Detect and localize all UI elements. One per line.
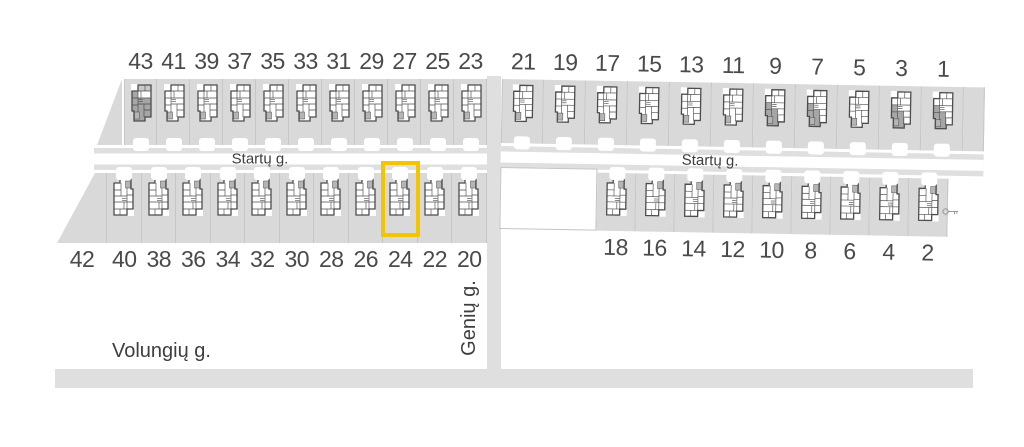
floor-plan-icon <box>146 178 172 216</box>
lot-number: 41 <box>161 48 186 75</box>
lot-number: 5 <box>853 54 866 81</box>
lot-number: 7 <box>811 53 824 80</box>
lot-number: 13 <box>679 51 704 78</box>
floor-plan-icon <box>392 84 418 122</box>
driveway-pad <box>724 140 740 153</box>
floor-plan-icon <box>318 178 344 216</box>
driveway-pad <box>882 172 898 185</box>
lot-25[interactable]: 25 <box>421 79 454 145</box>
lot-number: 17 <box>595 50 620 77</box>
floor-plan-icon <box>353 178 379 216</box>
lot-10[interactable]: 10 <box>752 175 792 234</box>
driveway-pad <box>166 138 182 151</box>
lot-number: 8 <box>804 237 817 264</box>
driveway-pad <box>199 138 215 151</box>
lot-number: 12 <box>720 236 745 263</box>
floor-plan-icon <box>759 181 786 219</box>
driveway-pad <box>804 170 820 183</box>
lot-8[interactable]: 8 <box>791 176 831 235</box>
lot-number: 11 <box>722 52 745 79</box>
driveway-pad <box>392 167 408 180</box>
lot-16[interactable]: 16 <box>635 173 675 232</box>
lot-18[interactable]: 18 <box>596 173 636 232</box>
lot-number: 29 <box>359 48 384 75</box>
street-name-label: Startų g. <box>682 152 739 170</box>
floor-plan-icon <box>551 85 578 123</box>
lot-15[interactable]: 15 <box>627 81 670 146</box>
street-geniu-label: Genių g. <box>457 280 481 356</box>
driveway-pad <box>609 167 625 180</box>
driveway-pad <box>331 138 347 151</box>
driveway-pad <box>185 167 201 180</box>
floor-plan-icon <box>456 178 482 216</box>
lot-29[interactable]: 29 <box>355 79 388 145</box>
lot-7[interactable]: 7 <box>795 84 838 149</box>
floor-plan-icon <box>509 84 536 122</box>
lot-number: 22 <box>422 246 447 273</box>
lot-number: 20 <box>457 246 482 273</box>
street-volungiu <box>55 369 973 388</box>
lot-11[interactable]: 11 <box>711 83 754 148</box>
floor-plan-icon <box>677 87 704 125</box>
lot-number: 27 <box>392 48 417 75</box>
lot-number: 15 <box>637 50 662 77</box>
floor-plan-icon <box>681 179 708 217</box>
lot-number: 21 <box>511 48 536 75</box>
floor-plan-icon <box>635 86 662 124</box>
lot-number: 2 <box>921 239 934 266</box>
lot-number: 4 <box>882 239 895 266</box>
lot-number: 28 <box>319 246 344 273</box>
block-right: 21191715131197531 Startų g. 181614121086… <box>499 79 985 272</box>
lot-number: 16 <box>642 234 667 261</box>
floor-plan-icon <box>887 91 914 129</box>
key-icon <box>942 203 959 221</box>
street-name-label: Startų g. <box>232 151 289 168</box>
floor-plan-icon <box>111 178 137 216</box>
floor-plan-icon <box>642 178 669 216</box>
lot-33[interactable]: 33 <box>289 79 322 145</box>
lot-number: 23 <box>458 48 483 75</box>
driveway-pad <box>765 170 781 183</box>
floor-plan-icon <box>249 178 275 216</box>
driveway-pad <box>232 138 248 151</box>
floor-plan-icon <box>161 84 187 122</box>
driveway-pad <box>766 141 782 154</box>
lot-22[interactable]: 22 <box>418 173 453 243</box>
floor-plan-icon <box>260 84 286 122</box>
lot-number: 33 <box>293 48 318 75</box>
lot-24[interactable]: 24 <box>383 173 418 243</box>
lot-31[interactable]: 31 <box>322 79 355 145</box>
floor-plan-icon <box>227 84 253 122</box>
lot-40[interactable]: 40 <box>107 173 142 243</box>
floor-plan-icon <box>876 183 903 221</box>
floor-plan-icon <box>422 178 448 216</box>
driveway-pad <box>892 143 908 156</box>
lot-17[interactable]: 17 <box>585 80 628 145</box>
lot-number: 36 <box>181 246 206 273</box>
driveway-pad <box>808 141 824 154</box>
floor-plan-icon <box>761 89 788 127</box>
driveway-pad <box>843 171 859 184</box>
lot-37[interactable]: 37 <box>223 79 256 145</box>
lot-number: 37 <box>227 48 252 75</box>
driveway-pad <box>514 136 530 149</box>
driveway-pad <box>298 138 314 151</box>
driveway-pad <box>265 138 281 151</box>
driveway-pad <box>463 138 479 151</box>
lot-21[interactable]: 21 <box>501 79 544 144</box>
driveway-pad <box>151 167 167 180</box>
driveway-pad <box>430 138 446 151</box>
driveway-pad <box>640 138 656 151</box>
driveway-pad <box>289 167 305 180</box>
lot-number: 42 <box>70 246 95 273</box>
lot-number: 10 <box>759 237 784 264</box>
lot-number: 32 <box>250 246 275 273</box>
floor-plan-icon <box>293 84 319 122</box>
driveway-pad <box>682 139 698 152</box>
driveway-pad <box>364 138 380 151</box>
lot-1[interactable]: 1 <box>921 86 964 151</box>
lot-30[interactable]: 30 <box>280 173 315 243</box>
block-edge-top-left <box>97 79 122 145</box>
floor-plan-icon <box>603 178 630 216</box>
floor-plan-icon <box>719 88 746 126</box>
driveway-pad <box>323 167 339 180</box>
floor-plan-icon <box>593 86 620 124</box>
block-bottom-right: 18161412108642 <box>499 171 948 237</box>
lot-20[interactable]: 20 <box>452 173 487 243</box>
floor-plan-icon <box>458 84 484 122</box>
lot-43[interactable]: 43 <box>124 79 157 145</box>
driveway-pad <box>921 172 937 185</box>
floor-plan-icon <box>284 178 310 216</box>
driveway-pad <box>461 167 477 180</box>
lot-5[interactable]: 5 <box>837 85 880 150</box>
floor-plan-icon <box>929 91 956 129</box>
floor-plan-icon <box>837 182 864 220</box>
block-top-left: 4341393735333129272523 <box>124 79 487 145</box>
driveway-pad <box>116 167 132 180</box>
floor-plan-icon <box>180 178 206 216</box>
lot-number: 34 <box>215 246 240 273</box>
lot-14[interactable]: 14 <box>674 174 714 233</box>
lot-4[interactable]: 4 <box>869 177 909 236</box>
driveway-pad <box>133 138 149 151</box>
lot-27[interactable]: 27 <box>388 79 421 145</box>
lot-number: 1 <box>937 56 950 83</box>
block-edge-top-right <box>963 87 985 151</box>
driveway-pad <box>220 167 236 180</box>
driveway-pad <box>358 167 374 180</box>
block-top-right: 21191715131197531 <box>501 79 985 151</box>
open-space-parcel <box>499 171 597 231</box>
floor-plan-icon <box>359 84 385 122</box>
lot-38[interactable]: 38 <box>142 173 177 243</box>
driveway-pad <box>726 169 742 182</box>
lot-number: 19 <box>553 49 578 76</box>
lot-number: 24 <box>388 246 413 273</box>
driveway-pad <box>687 168 703 181</box>
lot-42[interactable]: 42 <box>57 173 107 243</box>
driveway-pad <box>934 144 950 157</box>
lot-36[interactable]: 36 <box>176 173 211 243</box>
lot-number: 6 <box>843 238 856 265</box>
lot-32[interactable]: 32 <box>245 173 280 243</box>
lot-number: 39 <box>194 48 219 75</box>
lot-12[interactable]: 12 <box>713 175 753 234</box>
lot-28[interactable]: 28 <box>314 173 349 243</box>
lot-39[interactable]: 39 <box>190 79 223 145</box>
floor-plan-icon <box>215 178 241 216</box>
road-center-strip <box>94 154 490 165</box>
lot-6[interactable]: 6 <box>830 177 870 236</box>
lot-number: 14 <box>681 235 706 262</box>
floor-plan-icon <box>194 84 220 122</box>
driveway-pad <box>648 168 664 181</box>
floor-plan-icon <box>798 181 825 219</box>
floor-plan-icon <box>803 89 830 127</box>
lot-number: 25 <box>425 48 450 75</box>
floor-plan-icon <box>425 84 451 122</box>
open-space-parcel <box>499 167 597 231</box>
driveway-pad <box>850 142 866 155</box>
driveway-pad <box>556 137 572 150</box>
lot-number: 18 <box>603 234 628 261</box>
lot-number: 9 <box>769 53 782 80</box>
driveway-pad <box>254 167 270 180</box>
lot-9[interactable]: 9 <box>753 83 796 148</box>
lot-number: 38 <box>146 246 171 273</box>
floor-plan-icon <box>915 183 942 221</box>
lot-23[interactable]: 23 <box>454 79 487 145</box>
driveway-pad <box>598 138 614 151</box>
lot-number: 31 <box>326 48 351 75</box>
lot-number: 35 <box>260 48 285 75</box>
street-volungiu-label: Volungių g. <box>112 340 211 363</box>
driveway-pad <box>427 167 443 180</box>
lot-35[interactable]: 35 <box>256 79 289 145</box>
site-plan: 4341393735333129272523 Startų g. 4240383… <box>0 0 1024 447</box>
block-bottom-left: 424038363432302826242220 <box>57 173 487 243</box>
lot-number: 3 <box>895 55 908 82</box>
floor-plan-icon <box>845 90 872 128</box>
driveway-pad <box>397 138 413 151</box>
floor-plan-icon <box>720 180 747 218</box>
empty-parcel <box>57 173 107 243</box>
lot-34[interactable]: 34 <box>211 173 246 243</box>
floor-plan-icon <box>326 84 352 122</box>
floor-plan-icon <box>128 84 154 122</box>
lot-26[interactable]: 26 <box>349 173 384 243</box>
floor-plan-icon <box>387 178 413 216</box>
lot-number: 26 <box>353 246 378 273</box>
lot-13[interactable]: 13 <box>669 82 712 147</box>
lot-19[interactable]: 19 <box>543 80 586 145</box>
lot-3[interactable]: 3 <box>879 86 922 151</box>
lot-number: 43 <box>128 48 153 75</box>
lot-number: 30 <box>284 246 309 273</box>
lot-number: 40 <box>112 246 137 273</box>
lot-41[interactable]: 41 <box>157 79 190 145</box>
